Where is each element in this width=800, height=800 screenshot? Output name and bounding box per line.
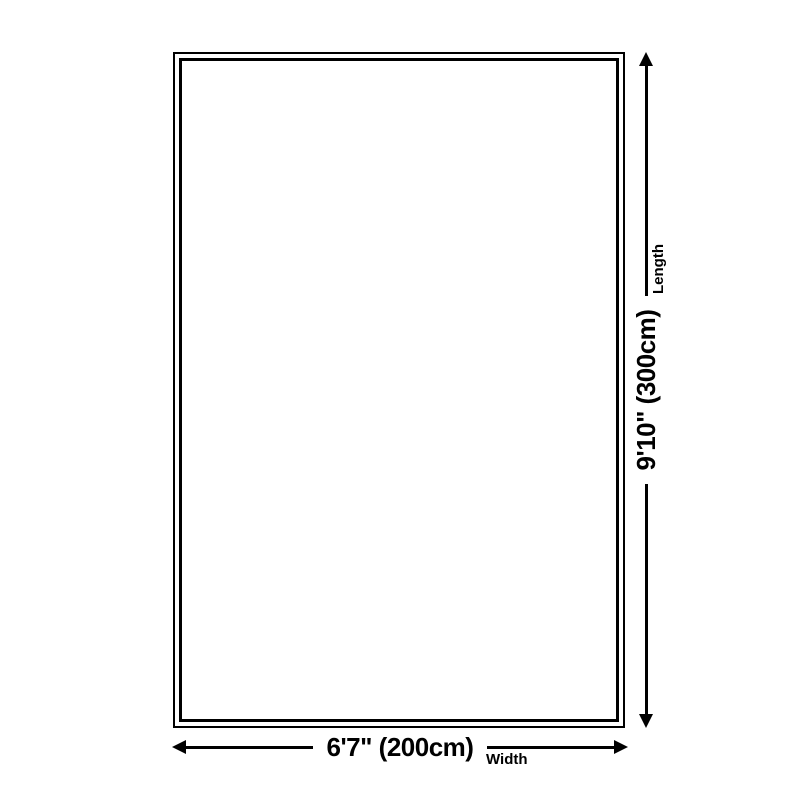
rug-outline-inner [179,58,619,722]
length-dimension-arrow: 9'10" (300cm) Length [626,52,666,728]
rug-outline-outer [173,52,625,728]
width-arrow-line-right [487,746,614,749]
rug-size-diagram: 9'10" (300cm) Length 6'7" (200cm) Width [0,0,800,800]
arrow-right-icon [614,740,628,754]
width-arrow-line-left [186,746,313,749]
arrow-down-icon [639,714,653,728]
length-arrow-line-lower [645,484,648,714]
length-dimension-text: 9'10" (300cm) [631,310,662,471]
arrow-left-icon [172,740,186,754]
width-dimension-arrow: 6'7" (200cm) Width [172,727,628,767]
width-dimension-text: 6'7" (200cm) [327,732,474,763]
length-arrow-line-upper [645,66,648,296]
width-axis-label: Width [486,751,528,768]
arrow-up-icon [639,52,653,66]
length-axis-label: Length [650,244,667,294]
